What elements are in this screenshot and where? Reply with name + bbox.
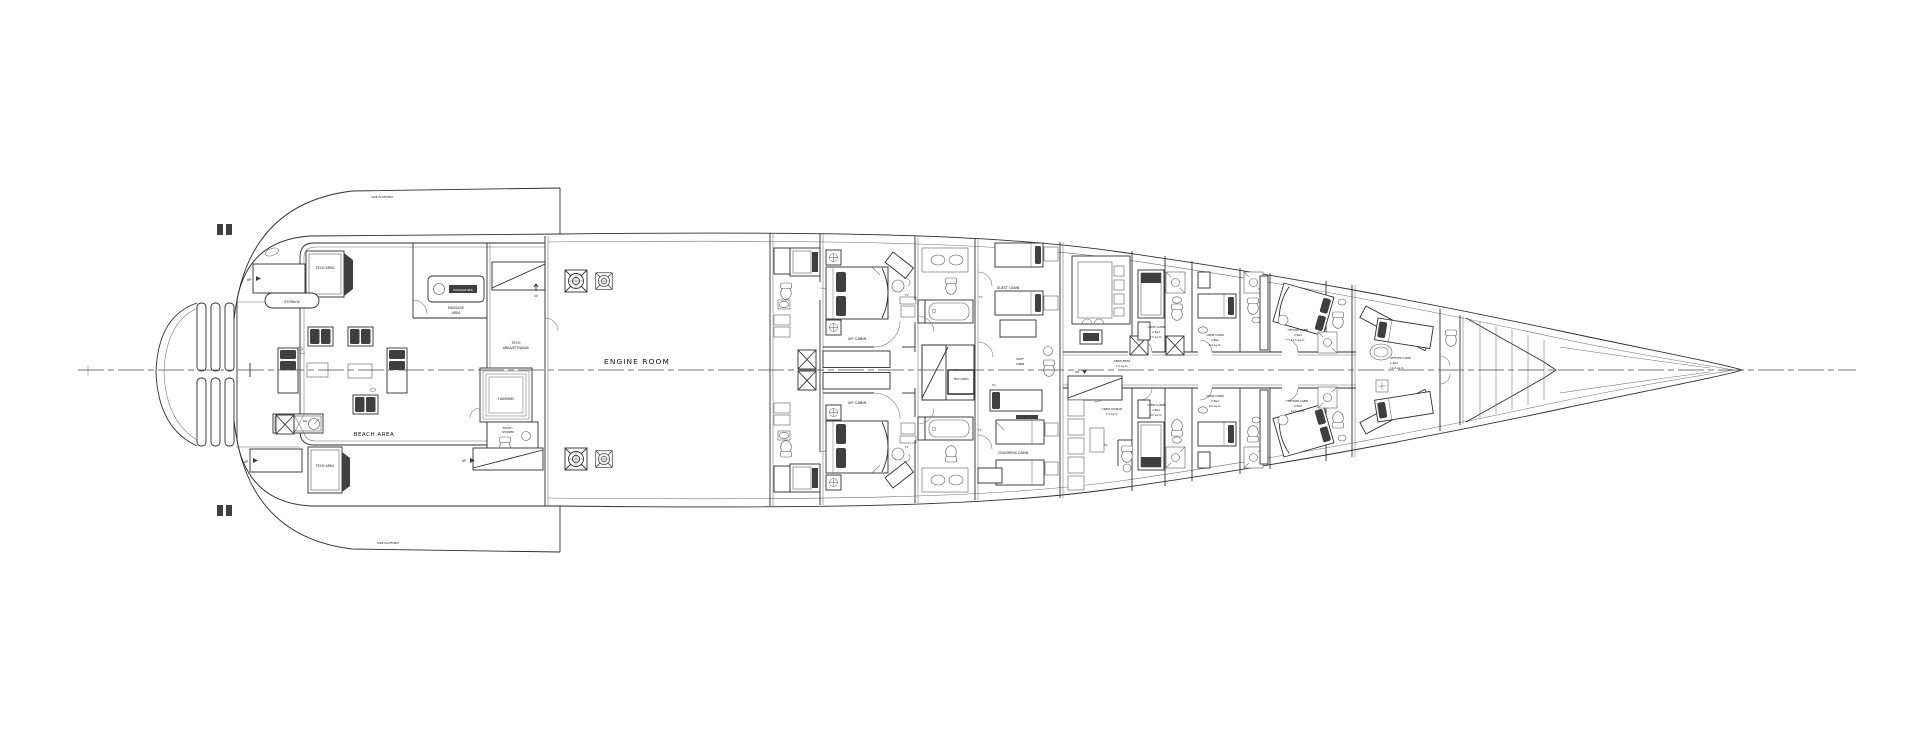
label-crew-lounge-area: 7.5 sq.m. [1106,412,1119,416]
label-tech-area-top: TECH AREA [315,266,336,270]
label-tv-lounge: TV [1103,443,1108,447]
label-crew-lounge: CREW LOUNGE [1102,407,1123,411]
label-storage: STORAGE [284,300,300,304]
label-massage-bed: MASSAGE BED [453,288,473,292]
label-up-stairs: UP [534,294,538,298]
label-tech-area-stairs-1: TECH AREA [952,377,968,381]
deck-plan-page: SIDE PLATFORM SIDE PLATFORM TECH AREA UP… [0,0,1920,740]
svg-text:2 Bed: 2 Bed [1152,330,1160,334]
svg-text:9.0 sq.m.: 9.0 sq.m. [1209,343,1222,347]
svg-text:10.5 sq.m.: 10.5 sq.m. [1291,409,1305,413]
label-tech-stowage-2: AREA/STOWAGE [503,346,530,350]
label-officer-bow-beds: 2 Bed [1390,361,1398,365]
label-dn: DN [1075,370,1079,374]
storage-locker: STORAGE [265,293,319,308]
staff-cabin: STAFF CABIN TV [978,342,1055,411]
label-staff-cabin-1: STAFF [1016,357,1025,361]
vip-cabin-furniture [823,250,916,347]
svg-text:CREW CABIN: CREW CABIN [1206,333,1223,337]
label-up-beach: UP [462,459,466,463]
locker-xbox-2 [1166,336,1184,355]
label-guest-cabin: GUEST CABIN [997,286,1020,290]
label-childrens-cabin: CHILDRENS CABIN [998,451,1029,455]
label-engine-room: ENGINE ROOM [604,357,670,366]
bow-block: OFFICER CABIN 2 Bed 12.0 sq.m. [1360,306,1920,740]
label-tv-vip-stbd: TV [904,445,909,449]
officer-cabin-labels: OFFICER CABIN 2 Bed 10.5 sq.m. OFFICER C… [1288,328,1309,413]
svg-text:OFFICER CABIN: OFFICER CABIN [1288,399,1309,403]
beach-stairs-bottom: UP [462,448,543,470]
guest-bathroom [918,248,973,332]
label-massage-area-1: MASSAGE [448,306,464,310]
label-tv-guest: TV [978,295,983,299]
label-tech-stowage-1: TECH [511,341,521,345]
svg-text:2 Bed: 2 Bed [1294,333,1302,337]
deck-plan-canvas: SIDE PLATFORM SIDE PLATFORM TECH AREA UP… [0,0,1920,740]
label-tv-staff: TV [991,383,996,387]
beach-loungers [278,327,407,414]
label-beach-area: BEACH AREA [354,432,394,438]
vip-lobby: TECH AREA [915,236,974,503]
label-up-bottom: UP [244,460,248,464]
beach-bar: Bar [273,414,323,434]
label-tech-area-bottom: TECH AREA [315,464,336,468]
label-officer-bow-area: 12.0 sq.m. [1390,366,1404,370]
label-vip-cabin-port: VIP CABIN [848,337,867,341]
svg-text:CREW CABIN: CREW CABIN [1206,394,1223,398]
label-staff-cabin-2: CABIN [1016,362,1024,366]
crew-mess: CREW MESS 7.5 sq.m. [1072,256,1130,368]
label-massage-area-2: AREA [452,311,462,315]
svg-text:10.5 sq.m.: 10.5 sq.m. [1291,338,1305,342]
label-officer-bow: OFFICER CABIN [1390,356,1411,360]
bow-cabin-furniture [1360,306,1433,351]
massage-area: MASSAGE BED MASSAGE AREA [413,243,487,318]
label-hammam: HAMMAM [498,397,514,401]
label-vip-cabin-starboard: VIP CABIN [848,401,867,405]
crew-lounge: TV CREW LOUNGE 7.5 sq.m. [1068,400,1133,490]
vip-block: TV TV VIP CABIN VIP CABIN TECH AREA [774,234,974,505]
label-side-platform-top: SIDE PLATFORM [371,195,393,199]
svg-text:2 Bed: 2 Bed [1152,408,1160,412]
hammam: HAMMAM [470,368,532,422]
crew-block: CREW MESS 7.5 sq.m. DN TV CREW LOUNGE 7.… [1063,251,1356,491]
svg-text:CREW CABIN: CREW CABIN [1147,325,1164,329]
svg-text:CREW CABIN: CREW CABIN [1147,403,1164,407]
svg-text:8.5 sq.m.: 8.5 sq.m. [1150,413,1163,417]
label-up-top: UP [247,278,251,282]
toilet-icon-bow-1 [1446,330,1457,346]
svg-text:2 Bed: 2 Bed [1211,338,1219,342]
guest-cabin: GUEST CABIN TV [978,243,1058,337]
svg-text:7.5 sq.m.: 7.5 sq.m. [1150,335,1163,339]
beach-area: TECH AREA UP STORAGE Bar BEACH AREA TECH [244,243,558,493]
svg-text:2 Bed: 2 Bed [1211,399,1219,403]
label-toilet-2: SHOWER [502,430,514,434]
label-crew-mess-area: 7.5 sq.m. [1116,364,1129,368]
svg-text:OFFICER CABIN: OFFICER CABIN [1288,328,1309,332]
crew-stairs-dn: DN [1068,370,1122,400]
label-tv-vip-port: TV [904,293,909,297]
label-crew-mess: CREW MESS [1114,359,1131,363]
childrens-cabin: TV CHILDRENS CABIN [977,415,1058,485]
label-side-platform-bottom: SIDE PLATFORM [377,541,399,545]
svg-text:9.0 sq.m.: 9.0 sq.m. [1209,404,1222,408]
mid-block: GUEST CABIN TV STAFF CABIN TV TV CHILDRE… [975,238,1063,500]
label-tv-childrens: TV [977,428,982,432]
crew-cabin-labels: CREW CABIN 2 Bed 7.5 sq.m. CREW CABIN 2 … [1147,325,1223,417]
svg-text:2 Bed: 2 Bed [1294,404,1302,408]
